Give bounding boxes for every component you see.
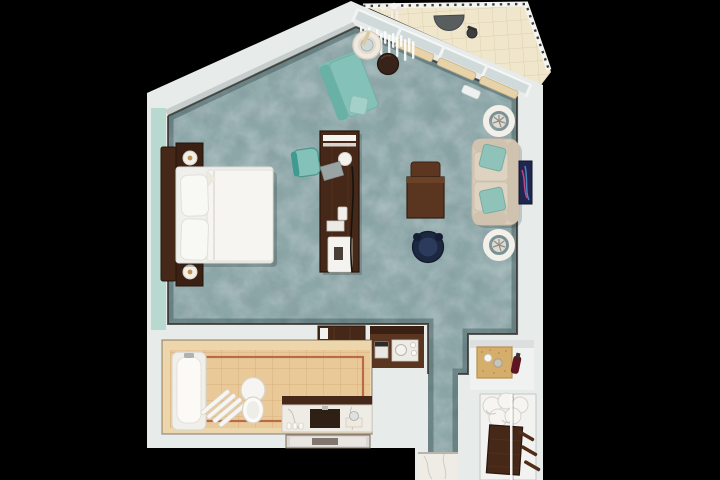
pouf bbox=[378, 54, 399, 75]
bathroom bbox=[162, 340, 372, 448]
floor-plan-stage bbox=[0, 0, 720, 480]
minibar-counter bbox=[370, 326, 424, 368]
vanity bbox=[282, 396, 372, 432]
wardrobe-door-edge bbox=[510, 394, 513, 480]
wardrobe bbox=[480, 393, 541, 480]
loveseat-back bbox=[507, 141, 519, 223]
kettle bbox=[396, 345, 407, 356]
minibar-backsplash bbox=[370, 326, 424, 334]
wall-artwork bbox=[519, 161, 532, 204]
swivel-chair-seat bbox=[419, 238, 438, 257]
table-edge bbox=[407, 177, 444, 183]
coffee-cup bbox=[411, 350, 416, 355]
vanity-faucet bbox=[322, 406, 328, 410]
throw-pillow bbox=[479, 187, 506, 214]
entry-marble-floor bbox=[418, 453, 458, 480]
vanity-kettle bbox=[350, 412, 359, 421]
mug bbox=[484, 354, 492, 362]
wardrobe-cabinet bbox=[486, 425, 522, 475]
bed bbox=[161, 147, 277, 281]
telephone bbox=[338, 207, 347, 220]
bed-pillow bbox=[180, 175, 208, 217]
vanity-sink bbox=[310, 409, 340, 428]
work-table bbox=[407, 162, 444, 218]
desk-chair bbox=[290, 147, 320, 177]
magazine-photo bbox=[334, 247, 343, 260]
bathtub bbox=[172, 352, 206, 430]
tub-faucet bbox=[184, 353, 194, 358]
ring-side-table bbox=[486, 108, 514, 136]
entry-corridor bbox=[418, 452, 458, 480]
floor-plan-render bbox=[0, 0, 720, 480]
media-console bbox=[320, 131, 362, 275]
throw-pillow bbox=[479, 144, 507, 172]
vanity-mirror bbox=[286, 435, 370, 448]
chaise-pillow bbox=[349, 95, 369, 115]
loveseat bbox=[472, 139, 522, 228]
console-runner bbox=[323, 135, 356, 141]
bed-headboard bbox=[161, 147, 176, 281]
dresser-item bbox=[320, 328, 328, 339]
ring-side-table bbox=[486, 232, 514, 260]
tucked-chair bbox=[411, 162, 440, 178]
vanity-shelf bbox=[282, 396, 372, 405]
bed-duvet bbox=[207, 170, 273, 261]
floor-transition bbox=[418, 452, 458, 454]
bed-pillow bbox=[180, 219, 208, 261]
swivel-chair bbox=[413, 232, 444, 263]
coffee-cup bbox=[410, 342, 415, 347]
console-runner bbox=[323, 143, 356, 147]
loveseat-arm bbox=[473, 212, 507, 225]
drink-table bbox=[353, 31, 381, 59]
pantry-niche bbox=[470, 340, 534, 390]
console-tray bbox=[327, 221, 344, 231]
glass-jar bbox=[494, 359, 502, 367]
amenities bbox=[287, 423, 303, 429]
